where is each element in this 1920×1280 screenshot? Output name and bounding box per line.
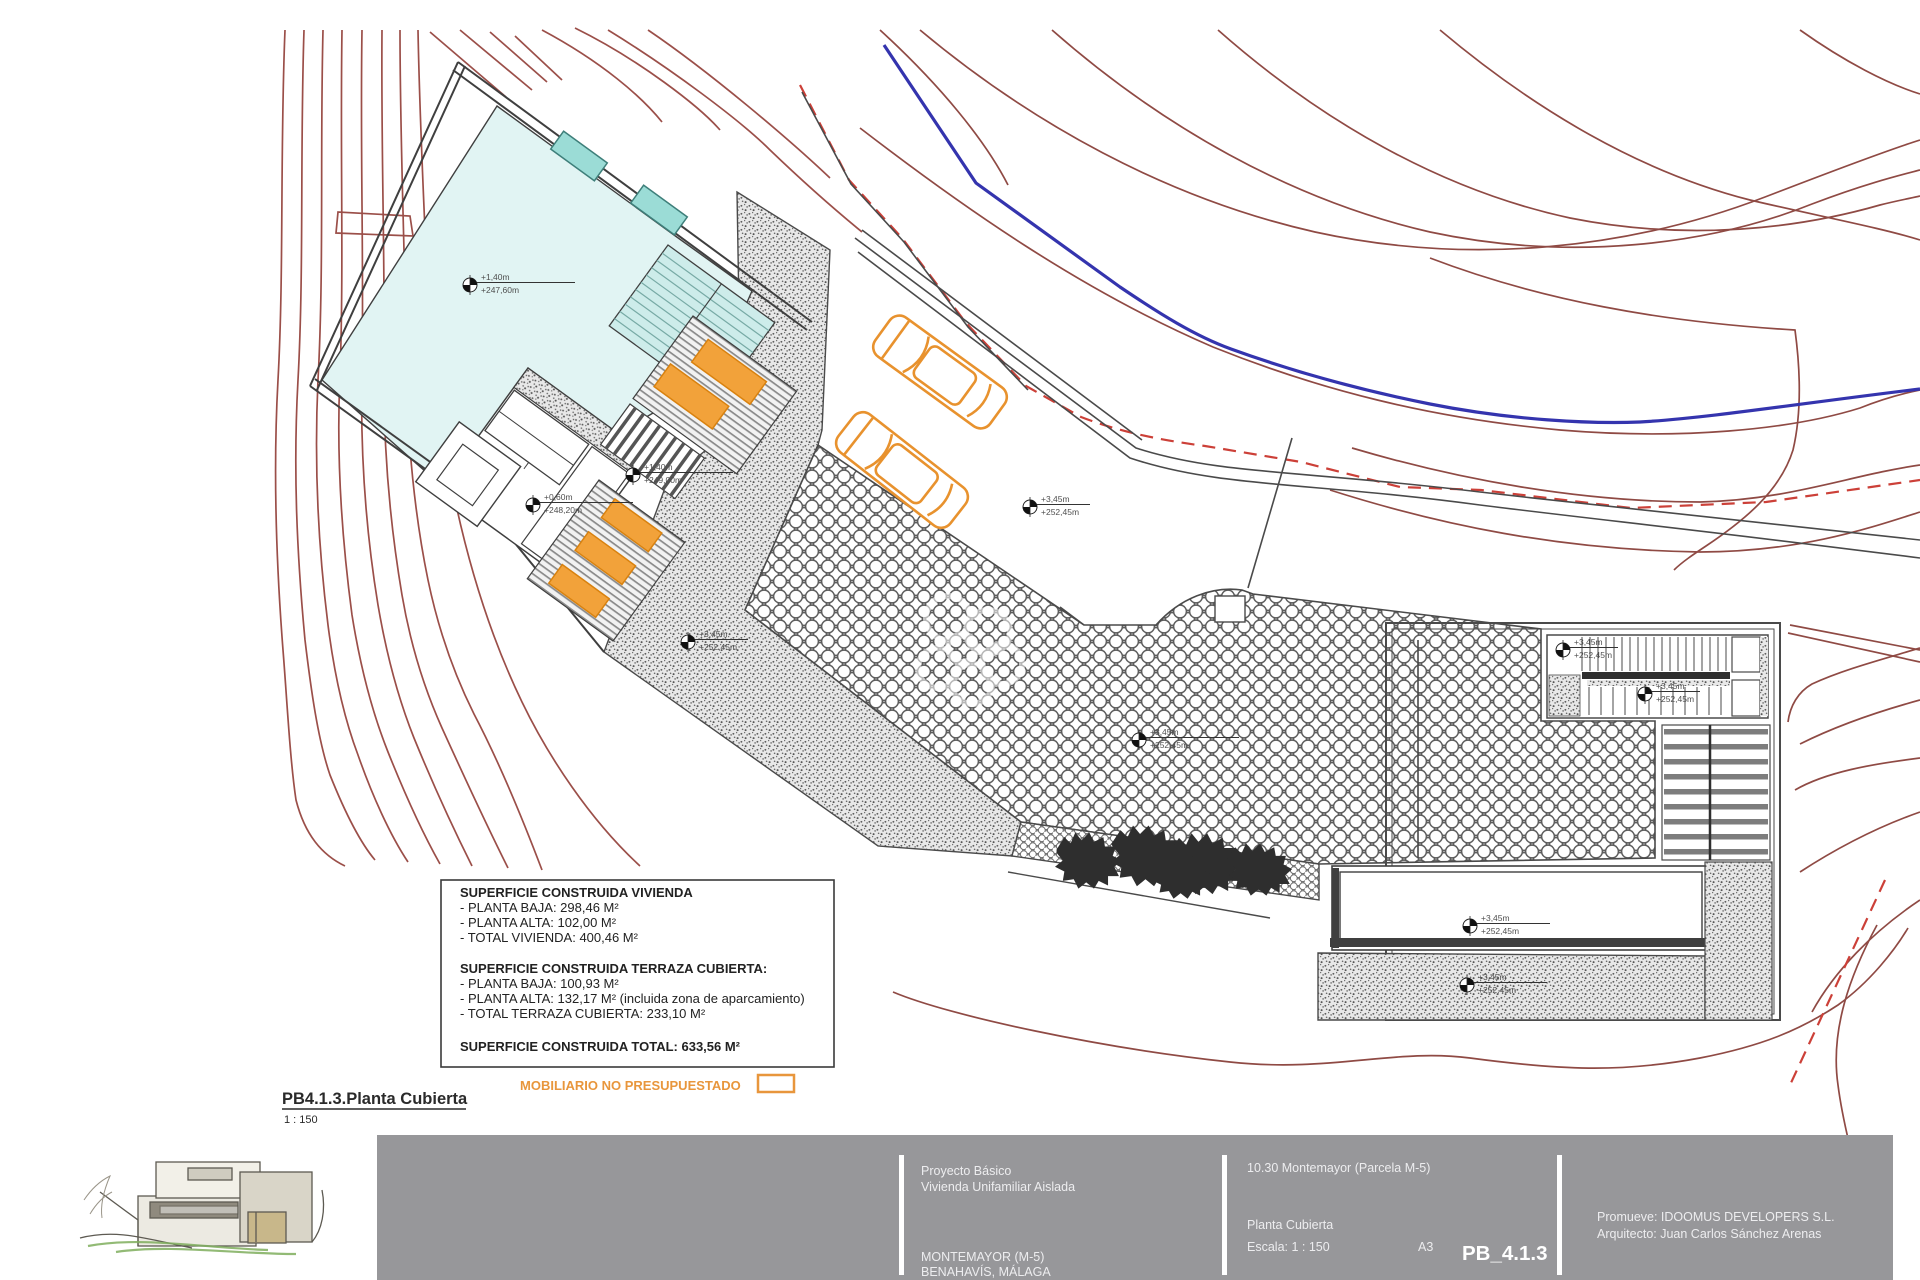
svg-text:+252,45m: +252,45m — [1574, 650, 1612, 660]
svg-text:Escala: 1 : 150: Escala: 1 : 150 — [1247, 1240, 1330, 1254]
svg-text:PB_4.1.3: PB_4.1.3 — [1462, 1242, 1547, 1265]
svg-text:+1,40m: +1,40m — [644, 462, 673, 472]
svg-text:BENAHAVÍS, MÁLAGA: BENAHAVÍS, MÁLAGA — [921, 1264, 1051, 1279]
svg-text:+252,45m: +252,45m — [1150, 740, 1188, 750]
svg-text:+1,40m: +1,40m — [481, 272, 510, 282]
svg-text:Vivienda Unifamiliar Aislada: Vivienda Unifamiliar Aislada — [921, 1180, 1075, 1194]
svg-text:+3,45m: +3,45m — [1041, 494, 1070, 504]
svg-text:- PLANTA BAJA: 100,93 M²: - PLANTA BAJA: 100,93 M² — [460, 976, 619, 991]
svg-text:Promueve: IDOOMUS DEVELOPERS S: Promueve: IDOOMUS DEVELOPERS S.L. — [1597, 1210, 1835, 1224]
svg-text:+252,45m: +252,45m — [1041, 507, 1079, 517]
svg-text:A3: A3 — [1418, 1240, 1433, 1254]
svg-text:Proyecto Básico: Proyecto Básico — [921, 1164, 1011, 1178]
svg-text:SUPERFICIE CONSTRUIDA VIVIENDA: SUPERFICIE CONSTRUIDA VIVIENDA — [460, 885, 693, 900]
svg-text:+248,20m: +248,20m — [544, 505, 582, 515]
svg-text:PB4.1.3.Planta Cubierta: PB4.1.3.Planta Cubierta — [282, 1090, 468, 1108]
svg-text:- PLANTA BAJA: 298,46 M²: - PLANTA BAJA: 298,46 M² — [460, 900, 619, 915]
svg-text:Arquitecto: Juan Carlos Sánche: Arquitecto: Juan Carlos Sánchez Arenas — [1597, 1227, 1821, 1241]
svg-text:SUPERFICIE CONSTRUIDA TOTAL: 6: SUPERFICIE CONSTRUIDA TOTAL: 633,56 M² — [460, 1039, 741, 1054]
svg-text:- TOTAL TERRAZA CUBIERTA: 233,: - TOTAL TERRAZA CUBIERTA: 233,10 M² — [460, 1006, 706, 1021]
svg-text:+249,00m: +249,00m — [644, 475, 682, 485]
svg-text:- TOTAL VIVIENDA: 400,46 M²: - TOTAL VIVIENDA: 400,46 M² — [460, 930, 639, 945]
svg-text:- PLANTA ALTA: 102,00 M²: - PLANTA ALTA: 102,00 M² — [460, 915, 617, 930]
svg-text:10.30 Montemayor (Parcela M-5): 10.30 Montemayor (Parcela M-5) — [1247, 1161, 1430, 1175]
svg-text:+3,45m: +3,45m — [1481, 913, 1510, 923]
svg-text:+3,45m: +3,45m — [1656, 681, 1685, 691]
svg-text:- PLANTA ALTA: 132,17 M² (incl: - PLANTA ALTA: 132,17 M² (incluida zona … — [460, 991, 805, 1006]
svg-text:+3,45m: +3,45m — [1478, 972, 1507, 982]
svg-text:+3,45m: +3,45m — [699, 629, 728, 639]
svg-text:+247,60m: +247,60m — [481, 285, 519, 295]
svg-text:MONTEMAYOR (M-5): MONTEMAYOR (M-5) — [921, 1250, 1044, 1264]
svg-text:+252,45m: +252,45m — [1481, 926, 1519, 936]
svg-text:+252,45m: +252,45m — [1478, 985, 1516, 995]
svg-text:MOBILIARIO NO PRESUPUESTADO: MOBILIARIO NO PRESUPUESTADO — [520, 1078, 741, 1093]
svg-text:+3,45m: +3,45m — [1574, 637, 1603, 647]
svg-text:+252,45m: +252,45m — [1656, 694, 1694, 704]
svg-text:+3,45m: +3,45m — [1150, 727, 1179, 737]
svg-text:Planta Cubierta: Planta Cubierta — [1247, 1218, 1333, 1232]
svg-text:SUPERFICIE CONSTRUIDA TERRAZA: SUPERFICIE CONSTRUIDA TERRAZA CUBIERTA: — [460, 961, 767, 976]
svg-text:+252,45m: +252,45m — [699, 642, 737, 652]
svg-text:+0,60m: +0,60m — [544, 492, 573, 502]
svg-text:1 : 150: 1 : 150 — [284, 1114, 318, 1126]
